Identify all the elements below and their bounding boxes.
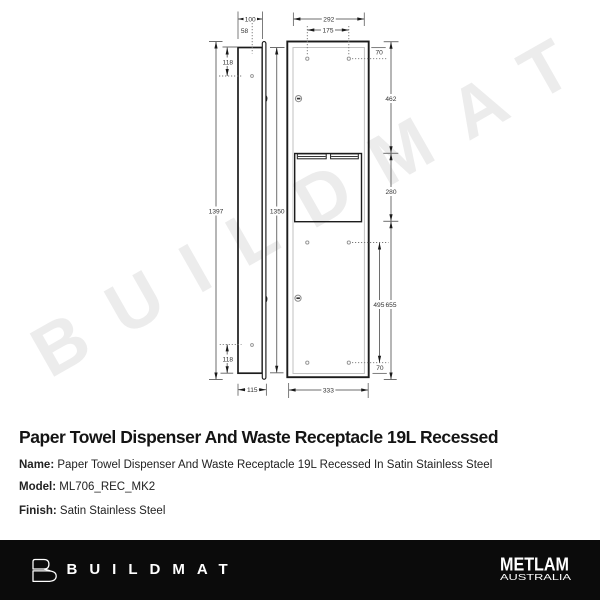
svg-text:METLAM: METLAM xyxy=(500,555,569,575)
svg-text:495: 495 xyxy=(373,302,384,309)
svg-text:BUILDMAT: BUILDMAT xyxy=(67,561,240,578)
svg-text:655: 655 xyxy=(385,302,396,309)
svg-text:AUSTRALIA: AUSTRALIA xyxy=(500,573,572,582)
svg-text:280: 280 xyxy=(385,189,396,196)
svg-text:115: 115 xyxy=(247,387,258,394)
svg-text:1350: 1350 xyxy=(270,208,285,215)
svg-text:118: 118 xyxy=(223,357,234,364)
svg-text:333: 333 xyxy=(323,387,334,394)
svg-text:462: 462 xyxy=(385,96,396,103)
svg-text:BUILDMAT: BUILDMAT xyxy=(18,8,600,393)
svg-text:58: 58 xyxy=(241,28,249,35)
svg-text:70: 70 xyxy=(376,365,384,372)
svg-text:118: 118 xyxy=(223,59,234,66)
svg-text:100: 100 xyxy=(245,17,256,24)
svg-text:292: 292 xyxy=(323,17,334,24)
svg-text:70: 70 xyxy=(376,50,384,57)
svg-text:1397: 1397 xyxy=(209,208,224,215)
svg-text:175: 175 xyxy=(322,27,333,34)
